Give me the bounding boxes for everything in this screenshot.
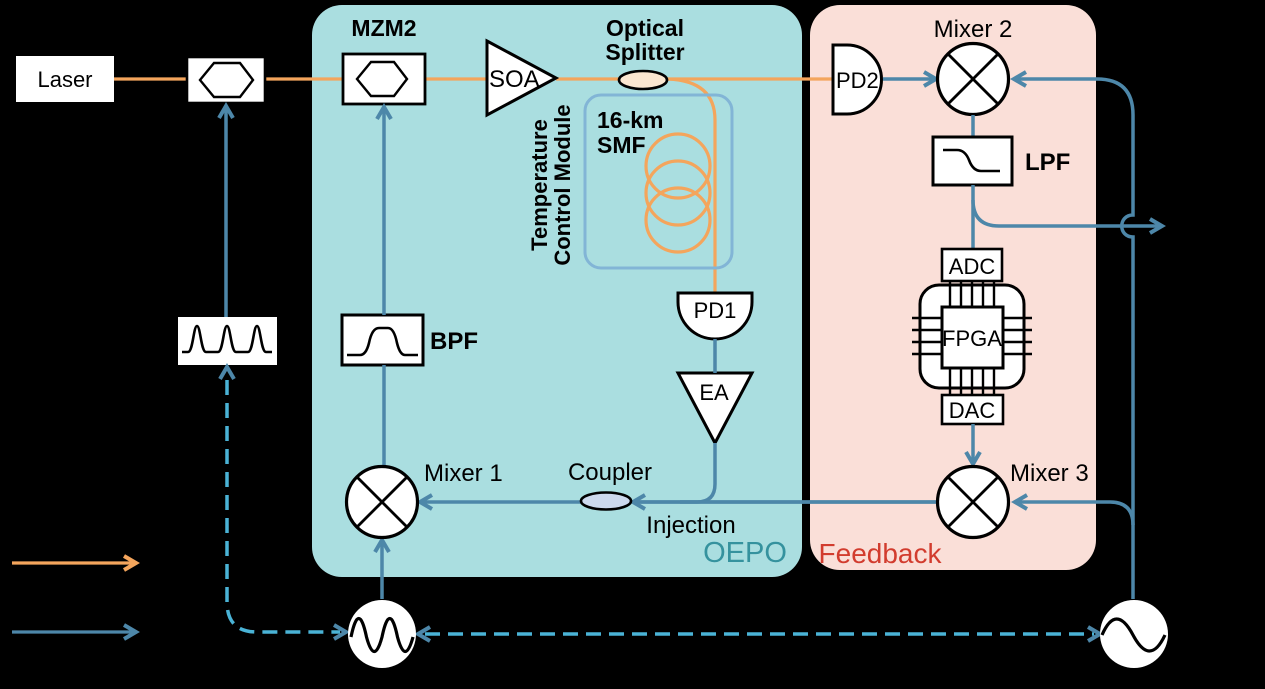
svg-text:SOA: SOA (489, 66, 540, 93)
svg-text:Temperature: Temperature (527, 119, 552, 251)
svg-text:Mixer 2: Mixer 2 (934, 16, 1013, 43)
svg-text:OEPO: OEPO (703, 537, 787, 569)
svg-text:Mixer 1: Mixer 1 (424, 460, 503, 487)
svg-text:Control Module: Control Module (550, 104, 575, 265)
svg-text:BPF: BPF (430, 328, 478, 355)
svg-text:FPGA: FPGA (942, 326, 1002, 351)
svg-text:Laser: Laser (37, 67, 92, 92)
svg-text:Splitter: Splitter (605, 39, 684, 65)
svg-text:DAC: DAC (949, 398, 996, 423)
svg-text:EA: EA (699, 380, 729, 405)
svg-text:PD2: PD2 (836, 68, 879, 93)
svg-text:Coupler: Coupler (568, 459, 652, 486)
svg-text:Injection: Injection (646, 512, 735, 539)
svg-text:Feedback: Feedback (819, 538, 943, 569)
svg-text:LPF: LPF (1025, 149, 1070, 176)
svg-text:Mixer 3: Mixer 3 (1010, 460, 1089, 487)
svg-text:Optical: Optical (606, 15, 684, 41)
svg-text:PD1: PD1 (694, 298, 737, 323)
svg-text:ADC: ADC (949, 254, 996, 279)
svg-text:MZM2: MZM2 (351, 15, 416, 41)
svg-text:SMF: SMF (597, 132, 646, 158)
svg-text:16-km: 16-km (597, 107, 663, 133)
